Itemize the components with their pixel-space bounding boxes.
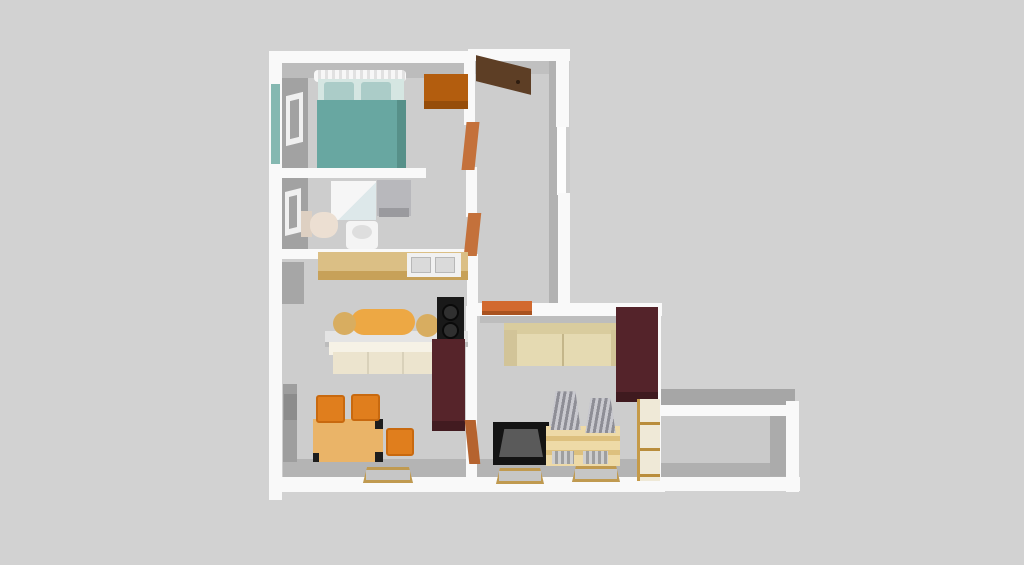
chest-trim-3	[637, 474, 660, 477]
corridor-shelf-handle	[516, 80, 520, 84]
wall-corridor-left-middle	[466, 167, 477, 217]
bathroom-window-pane	[289, 195, 297, 229]
sofa-beige-body[interactable]	[504, 334, 624, 366]
living-window	[284, 394, 297, 420]
sofa-white-seam-1	[367, 352, 369, 374]
wall-shelf-orange-edge	[482, 311, 532, 315]
kitchen-sink-basin-left	[411, 257, 431, 273]
chest-trim-2	[637, 448, 660, 451]
wall-bedroom-bathroom	[276, 168, 426, 178]
dining-table[interactable]	[313, 419, 383, 462]
bar-stool-left[interactable]	[333, 312, 356, 335]
floorplan-3d-view[interactable]	[0, 0, 1024, 565]
wardrobe-left-bottom	[432, 421, 465, 431]
footrest-2[interactable]	[583, 451, 608, 464]
dining-chair-3[interactable]	[386, 428, 414, 456]
stove-burner-top	[442, 304, 459, 321]
chest-of-drawers[interactable]	[637, 399, 660, 481]
shower[interactable]	[331, 181, 376, 220]
dining-table-leg-bl	[313, 453, 319, 462]
wall-corridor-left-lower	[467, 254, 478, 310]
sofa-beige-seam	[562, 334, 564, 366]
bedroom-curtain	[271, 84, 280, 164]
wall-extension-bottom	[652, 477, 800, 491]
chest-trim-left	[637, 399, 640, 481]
desk-stripe-1	[546, 436, 620, 441]
wall-top-bedroom	[276, 51, 474, 63]
bed-duvet[interactable]	[317, 100, 404, 168]
dining-chair-2[interactable]	[351, 394, 380, 421]
sofa-white-seam-2	[402, 352, 404, 374]
bar-stool-right[interactable]	[416, 314, 439, 337]
wardrobe-right[interactable]	[616, 307, 658, 401]
bed-duvet-edge	[397, 100, 406, 168]
bedroom-wall-cabinet-front	[424, 101, 468, 109]
bedroom-window-pane	[290, 99, 299, 139]
wardrobe-left[interactable]	[432, 339, 465, 431]
chest-trim-1	[637, 422, 660, 425]
bedroom-wall-cabinet[interactable]	[424, 74, 468, 104]
bar-bench-cushion[interactable]	[351, 309, 415, 335]
wall-corridor-right-lower	[558, 193, 570, 310]
doormat-living	[363, 467, 413, 483]
doormat-right-1	[496, 468, 544, 484]
dining-table-leg-br	[375, 452, 383, 462]
wall-extension-top	[656, 405, 798, 416]
sofa-beige-arm-left	[504, 330, 517, 366]
toilet-bowl[interactable]	[310, 212, 338, 238]
stove-burner-bottom	[442, 322, 459, 339]
app-window	[0, 0, 1024, 565]
doormat-right-2	[572, 466, 620, 482]
washbasin-bowl	[352, 225, 372, 239]
dining-chair-1[interactable]	[316, 395, 345, 423]
kitchen-sink-basin-right	[435, 257, 455, 273]
piano-top	[499, 429, 543, 457]
wall-corridor-right-upper	[556, 51, 569, 127]
footrest-1[interactable]	[552, 451, 574, 464]
kitchen-left-wall-face	[282, 262, 304, 304]
entrance-door[interactable]	[557, 127, 566, 195]
washing-machine-front	[379, 208, 409, 217]
sofa-white-seat[interactable]	[333, 352, 440, 374]
